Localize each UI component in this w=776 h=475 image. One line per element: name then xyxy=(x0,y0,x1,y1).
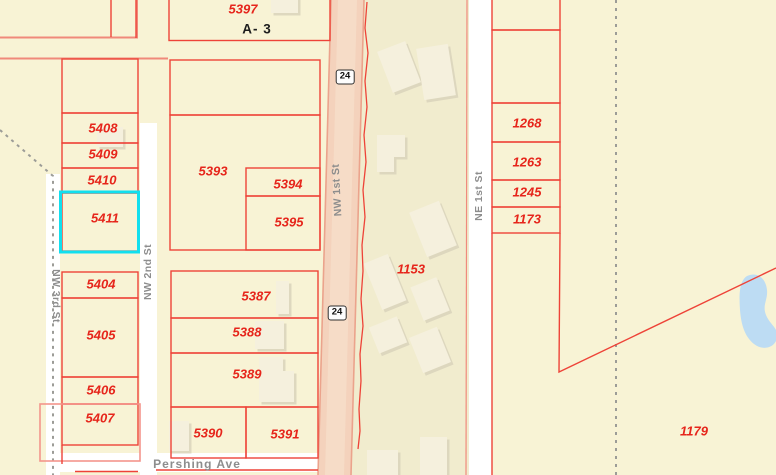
parcel-label-5409: 5409 xyxy=(89,147,118,162)
parcel-label-5407: 5407 xyxy=(86,411,115,426)
street-label-ne-1st: NE 1st St xyxy=(473,171,485,221)
parcel-label-5405: 5405 xyxy=(87,328,116,343)
building xyxy=(276,281,289,314)
building xyxy=(271,0,298,13)
parcel-label-1245: 1245 xyxy=(513,185,542,200)
parcel-label-5389: 5389 xyxy=(233,367,262,382)
parcel-label-5406: 5406 xyxy=(87,383,116,398)
building xyxy=(420,437,447,475)
street-label-nw-2nd: NW 2nd St xyxy=(142,244,154,300)
parcel-label-5390: 5390 xyxy=(194,426,223,441)
route-24-shield-south: 24 xyxy=(328,306,347,321)
map-canvas[interactable]: 5397 5408 5409 5410 5411 5404 5405 5406 … xyxy=(0,0,776,475)
parcel-label-1173: 1173 xyxy=(513,212,541,227)
street-ne-1st xyxy=(469,0,492,475)
parcel-label-5387: 5387 xyxy=(242,289,271,304)
parcel-label-5408: 5408 xyxy=(89,121,118,136)
parcel-label-5411: 5411 xyxy=(91,211,119,226)
parcel-label-1153: 1153 xyxy=(397,262,425,277)
zoning-label: A- 3 xyxy=(242,22,272,37)
street-label-nw-3rd: NW 3rd St xyxy=(50,269,62,323)
parcel-label-1179: 1179 xyxy=(680,424,708,439)
parcel-label-5391: 5391 xyxy=(271,427,300,442)
building xyxy=(169,421,189,451)
parcel-label-5388: 5388 xyxy=(233,325,262,340)
parcel-label-5410: 5410 xyxy=(88,173,117,188)
parcel-label-5397: 5397 xyxy=(229,2,258,17)
parcel-label-1268: 1268 xyxy=(513,116,542,131)
parcel-label-1263: 1263 xyxy=(513,155,542,170)
building xyxy=(367,450,398,475)
parcel-label-5394: 5394 xyxy=(274,177,303,192)
parcel-label-5393: 5393 xyxy=(199,164,228,179)
parcel-label-5395: 5395 xyxy=(275,215,304,230)
route-24-shield-north: 24 xyxy=(336,70,355,85)
street-label-pershing: Pershing Ave xyxy=(153,457,241,471)
parcel-label-5404: 5404 xyxy=(87,277,116,292)
